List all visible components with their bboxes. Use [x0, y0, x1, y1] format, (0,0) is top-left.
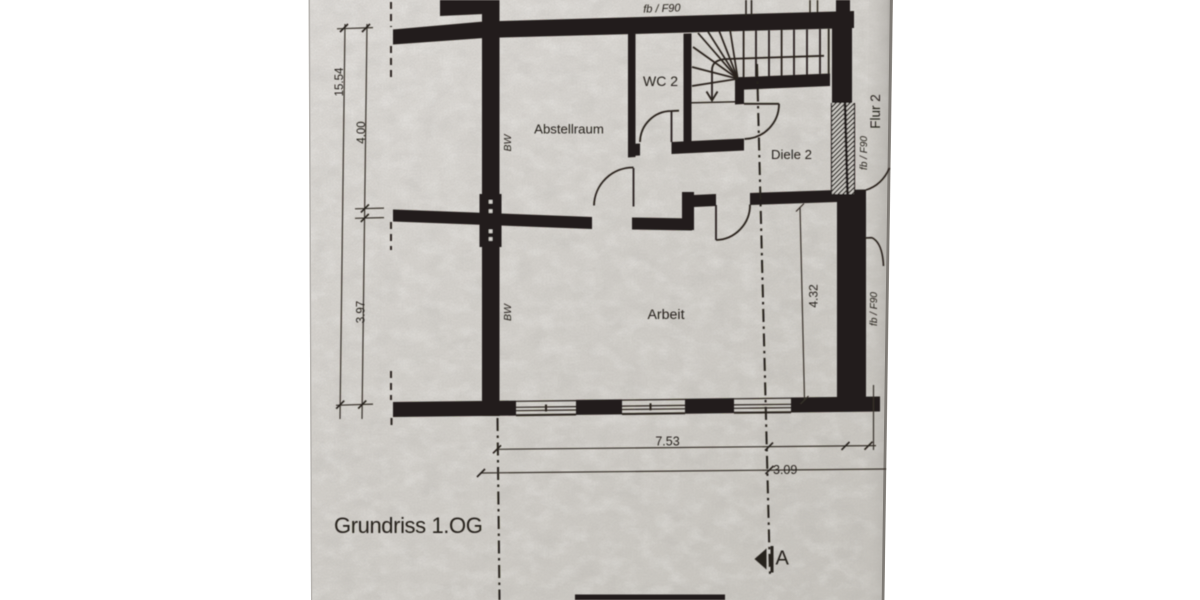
svg-text:3.97: 3.97	[356, 301, 368, 323]
svg-text:15.54: 15.54	[334, 67, 346, 96]
svg-text:7.53: 7.53	[655, 435, 679, 449]
svg-text:4.32: 4.32	[807, 284, 821, 308]
svg-text:BW: BW	[502, 303, 514, 321]
svg-text:Arbeit: Arbeit	[647, 307, 684, 323]
svg-text:fb / F90: fb / F90	[643, 2, 682, 15]
svg-text:4.00: 4.00	[356, 121, 368, 143]
svg-text:BW: BW	[502, 133, 514, 151]
svg-text:Grundriss 1.OG: Grundriss 1.OG	[334, 513, 482, 538]
svg-text:3.09: 3.09	[773, 463, 797, 477]
svg-text:Diele 2: Diele 2	[771, 147, 812, 162]
svg-text:fb / F90: fb / F90	[859, 136, 870, 170]
svg-text:Flur 2: Flur 2	[868, 94, 883, 129]
svg-text:WC 2: WC 2	[643, 73, 678, 89]
svg-text:Abstellraum: Abstellraum	[534, 122, 604, 137]
svg-text:fb / F90: fb / F90	[869, 292, 880, 326]
svg-text:A: A	[776, 548, 790, 570]
